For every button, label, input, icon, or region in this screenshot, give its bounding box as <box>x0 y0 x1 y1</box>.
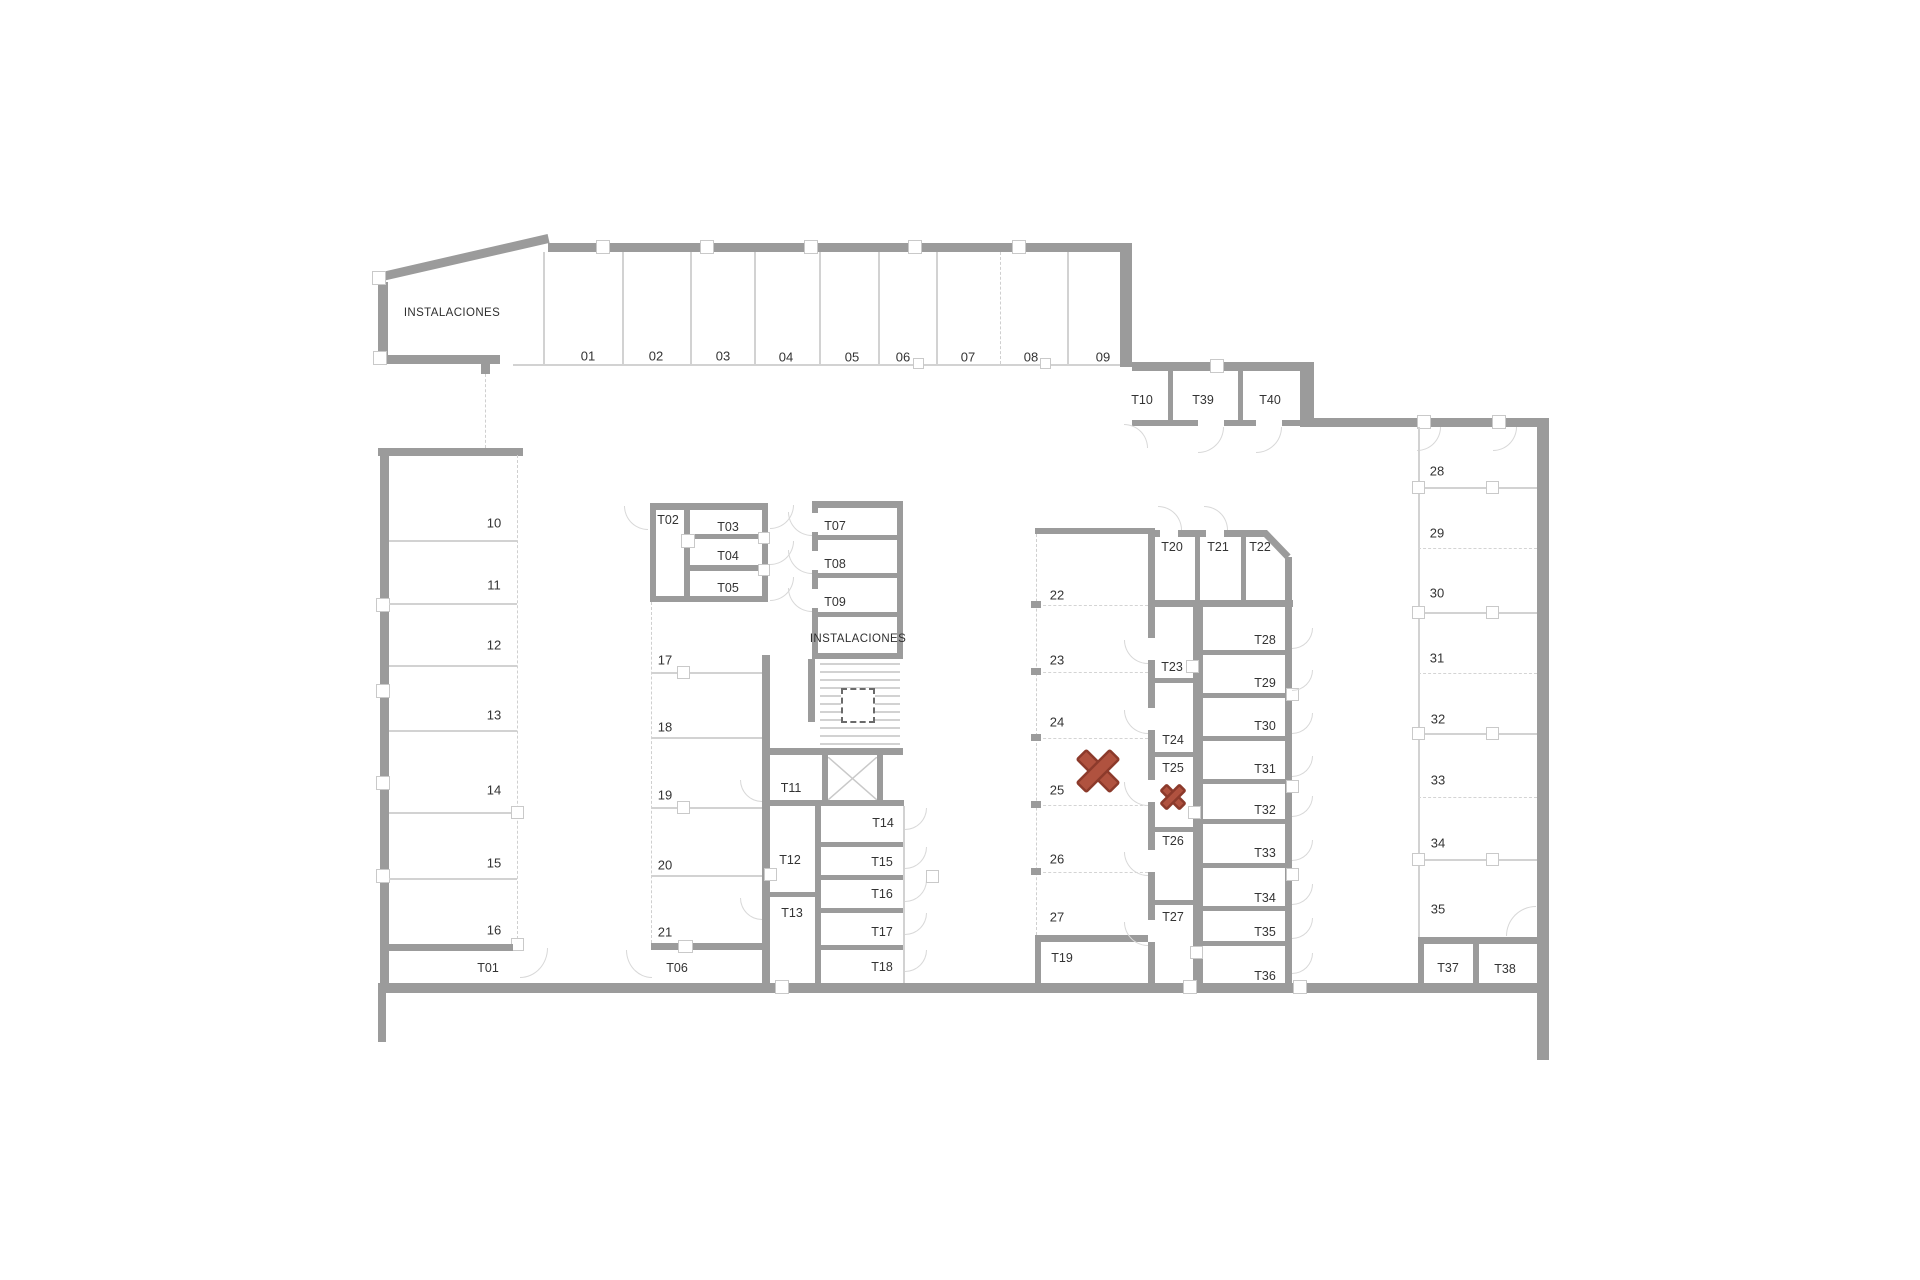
parking-spot-label: 12 <box>487 638 501 653</box>
parking-line-dashed <box>1038 672 1148 673</box>
storage-room-label: T05 <box>717 581 739 595</box>
parking-line <box>389 665 517 667</box>
door-gap <box>1148 780 1155 802</box>
t01-top-wall <box>389 944 513 951</box>
storage-room-label: T35 <box>1254 925 1276 939</box>
storage-room-label: T29 <box>1254 676 1276 690</box>
door-arc <box>1292 628 1313 649</box>
storage-room-label: T03 <box>717 520 739 534</box>
storage-room-label: T14 <box>872 816 894 830</box>
parking-divider <box>622 252 624 364</box>
storage-room-label: T11 <box>781 781 802 795</box>
door-arc <box>788 550 812 574</box>
left-block-top-wall <box>378 448 523 456</box>
storage-room-label: T25 <box>1162 761 1184 775</box>
parking-spot-label: 09 <box>1096 350 1110 365</box>
door-arc <box>1124 782 1148 806</box>
parking-divider <box>819 252 821 364</box>
parking-spot-label: 27 <box>1050 910 1064 925</box>
pillar <box>376 869 390 883</box>
t28-t29-divider <box>1203 650 1288 655</box>
pillar <box>775 980 789 994</box>
door-gap <box>812 551 818 570</box>
door-arc <box>1292 953 1313 974</box>
t31-t32-divider <box>1203 779 1288 784</box>
elevator-shaft-cross <box>828 757 877 800</box>
pillar <box>1183 980 1197 994</box>
t02-interior-wall <box>684 510 690 600</box>
parking-line-dashed <box>1418 548 1537 549</box>
stair-void <box>841 688 875 723</box>
t21-t22-divider <box>1241 537 1246 601</box>
parking-spot-label: 20 <box>658 858 672 873</box>
parking-spot-label: 06 <box>896 350 910 365</box>
storage-room-label: T17 <box>871 925 893 939</box>
storage-room-label: T24 <box>1162 733 1184 747</box>
parking-line-dashed <box>1418 797 1537 798</box>
pillar <box>1012 240 1026 254</box>
parking-spot-label: 02 <box>649 349 663 364</box>
parking-line <box>651 737 768 739</box>
pillar <box>1040 358 1051 369</box>
t26-t27-divider <box>1153 900 1193 905</box>
pillar <box>1412 727 1425 740</box>
parking-spot-label: 19 <box>658 788 672 803</box>
door-arc <box>1506 906 1536 936</box>
door-arc <box>1292 670 1313 691</box>
door-arc <box>1292 840 1313 861</box>
t04-t05-divider <box>690 565 768 571</box>
t28-col-right-wall <box>1285 557 1292 985</box>
door-gap <box>1148 920 1155 942</box>
t19-left-wall <box>1035 935 1041 983</box>
parking-line-dashed <box>1038 805 1148 806</box>
storage-room-label: T20 <box>1161 540 1183 554</box>
door-arc <box>1124 710 1148 734</box>
parking-line <box>1418 487 1537 489</box>
parking-line <box>651 875 768 877</box>
door-arc <box>740 898 762 920</box>
pillar <box>1190 946 1203 959</box>
parking-spot-label: 34 <box>1431 836 1445 851</box>
door-gap <box>1148 850 1155 872</box>
wall-tick <box>1031 601 1041 608</box>
storage-room-label: T04 <box>717 549 739 563</box>
pillar <box>1486 606 1499 619</box>
parking-line <box>389 878 517 880</box>
storage-room-label: T18 <box>871 960 893 974</box>
pillar <box>376 776 390 790</box>
pillar <box>1286 780 1299 793</box>
parking-line <box>389 730 517 732</box>
storage-room-label: T15 <box>871 855 893 869</box>
parking-spot-label: 01 <box>581 349 595 364</box>
wall-tick <box>1031 668 1041 675</box>
pillar <box>1412 606 1425 619</box>
t09-inst-divider <box>818 612 903 617</box>
parking-spot-label: 35 <box>1431 902 1445 917</box>
t30-t31-divider <box>1203 736 1288 741</box>
center-aisle-dashed-line <box>651 602 652 943</box>
storage-room-label: T34 <box>1254 891 1276 905</box>
pillar <box>376 684 390 698</box>
stair-bottom-wall <box>762 748 903 755</box>
parking-divider <box>1067 252 1069 364</box>
pillar <box>677 666 690 679</box>
door-arc <box>1124 640 1148 664</box>
pillar <box>1486 481 1499 494</box>
t14-col-left-wall <box>815 806 821 983</box>
top-left-diagonal-wall <box>377 234 550 282</box>
parking-line-dashed <box>1038 605 1148 606</box>
pillar <box>1293 980 1307 994</box>
parking-divider <box>754 252 756 364</box>
right-outer-wall <box>1537 418 1549 1060</box>
storage-room-label: T27 <box>1162 910 1184 924</box>
t12-t13-divider <box>768 892 815 897</box>
elevator-right-wall <box>877 755 883 801</box>
door-arc <box>1204 506 1228 530</box>
t20-t21-divider <box>1195 537 1200 601</box>
parking-spot-label: 21 <box>658 925 672 940</box>
t37-block-top-wall <box>1418 937 1538 944</box>
t07-block-bottom-wall <box>812 653 903 659</box>
left-outer-wall <box>380 456 389 983</box>
storage-room-label: T10 <box>1131 393 1153 407</box>
door-gap <box>1148 708 1155 730</box>
pillar <box>1486 727 1499 740</box>
pillar <box>764 868 777 881</box>
door-arc <box>905 847 927 869</box>
parking-divider <box>936 252 938 364</box>
t02-block-bottom-wall <box>650 596 768 602</box>
mid-block-top-wall <box>1035 528 1150 534</box>
parking-line <box>389 540 517 542</box>
t06-top-wall <box>651 943 768 950</box>
pillar <box>804 240 818 254</box>
stair-tread <box>820 735 900 737</box>
parking-divider-dashed <box>1000 252 1001 364</box>
pillar <box>373 351 387 365</box>
t24-t25-divider <box>1153 752 1193 757</box>
door-arc <box>1292 756 1313 777</box>
door-arc <box>1124 424 1148 448</box>
parking-spot-label: 18 <box>658 720 672 735</box>
pillar <box>1412 481 1425 494</box>
t33-t34-divider <box>1203 863 1288 868</box>
entrance-stub-wall <box>481 362 490 374</box>
instalaciones-upper-label: INSTALACIONES <box>404 307 500 319</box>
t17-t18-divider <box>821 945 903 950</box>
storage-room-label: T38 <box>1494 962 1516 976</box>
door-arc <box>1417 427 1441 451</box>
door-arc <box>905 880 927 902</box>
pillar <box>926 870 939 883</box>
marker-x-small <box>1158 782 1188 812</box>
parking-line <box>651 672 768 674</box>
door-arc <box>1292 918 1313 939</box>
parking-spot-label: 05 <box>845 350 859 365</box>
door-gap <box>812 513 818 532</box>
door-arc <box>1198 427 1224 453</box>
t20-strip-bottom-wall <box>1150 600 1293 607</box>
bottom-left-descender-wall <box>378 993 386 1042</box>
door-arc <box>905 950 927 972</box>
door-arc <box>1158 506 1182 530</box>
stair-tread <box>820 727 900 729</box>
storage-room-label: T19 <box>1051 951 1073 965</box>
storage-room-label: T02 <box>657 513 679 527</box>
parking-spot-label: 10 <box>487 516 501 531</box>
parking-line <box>1418 612 1537 614</box>
storage-room-label: T07 <box>824 519 846 533</box>
parking-line <box>651 807 768 809</box>
pillar <box>678 940 693 953</box>
pillar <box>908 240 922 254</box>
stair-tread <box>820 663 900 665</box>
top-right-vertical-wall <box>1120 243 1132 367</box>
t02-block-top-wall <box>650 503 768 510</box>
storage-room-label: T06 <box>666 961 688 975</box>
corridor-wall <box>762 655 770 983</box>
t34-t35-divider <box>1203 906 1288 911</box>
parking-spot-label: 32 <box>1431 712 1445 727</box>
parking-spot-label: 23 <box>1050 653 1064 668</box>
door-arc <box>1292 713 1313 734</box>
door-arc <box>1493 427 1517 451</box>
door-gap <box>1256 419 1282 427</box>
parking-spot-label: 29 <box>1430 526 1444 541</box>
parking-divider <box>690 252 692 364</box>
storage-room-label: T16 <box>871 887 893 901</box>
storage-room-label: T22 <box>1249 540 1271 554</box>
t02-block-right-wall <box>762 503 768 602</box>
pillar <box>511 806 524 819</box>
door-arc <box>788 512 812 536</box>
parking-line <box>1418 859 1537 861</box>
storage-room-label: T01 <box>477 961 499 975</box>
storage-room-label: T23 <box>1161 660 1183 674</box>
pillar <box>681 534 695 548</box>
pillar <box>1186 660 1199 673</box>
t07-block-top-wall <box>812 501 903 508</box>
t08-t09-divider <box>818 573 903 578</box>
parking-line <box>389 812 517 814</box>
storage-room-label: T21 <box>1207 540 1229 554</box>
storage-room-label: T32 <box>1254 803 1276 817</box>
storage-room-label: T12 <box>779 853 801 867</box>
t35-t36-divider <box>1203 941 1288 946</box>
door-arc <box>626 950 652 978</box>
parking-line <box>1418 733 1537 735</box>
storage-room-label: T40 <box>1259 393 1281 407</box>
door-gap <box>1198 419 1224 427</box>
door-arc <box>520 948 548 978</box>
parking-spot-label: 30 <box>1430 586 1444 601</box>
t15-t16-divider <box>821 875 903 880</box>
t14-t15-divider <box>821 842 903 847</box>
door-arc <box>740 780 762 802</box>
left-aisle-dashed-line <box>517 455 518 944</box>
marker-x-large <box>1072 747 1124 795</box>
parking-line-dashed <box>1038 738 1148 739</box>
storage-room-label: T33 <box>1254 846 1276 860</box>
door-arc <box>1292 796 1313 817</box>
storage-room-label: T31 <box>1254 762 1276 776</box>
pillar <box>1210 359 1224 373</box>
door-gap <box>1148 638 1155 660</box>
parking-spot-label: 25 <box>1050 783 1064 798</box>
t32-t33-divider <box>1203 819 1288 824</box>
storage-room-label: T36 <box>1254 969 1276 983</box>
t10-block-right-wall <box>1300 362 1314 427</box>
wall-tick <box>1031 801 1041 808</box>
parking-spot-label: 17 <box>658 653 672 668</box>
storage-room-label: T08 <box>824 557 846 571</box>
parking-spot-label: 14 <box>487 783 501 798</box>
t10-t39-divider <box>1168 371 1173 423</box>
stair-tread <box>820 671 900 673</box>
storage-room-label: T09 <box>824 595 846 609</box>
pillar <box>596 240 610 254</box>
pillar <box>1412 853 1425 866</box>
door-gap <box>812 589 818 608</box>
door-arc <box>1124 922 1148 946</box>
door-arc <box>905 808 927 830</box>
parking-spot-label: 16 <box>487 923 501 938</box>
t25-t26-divider <box>1153 827 1193 832</box>
stair-tread <box>820 743 900 745</box>
pillar <box>372 271 386 285</box>
wall-tick <box>1031 734 1041 741</box>
parking-spot-label: 31 <box>1430 651 1444 666</box>
parking-spot-label: 03 <box>716 349 730 364</box>
entrance-dashed-line <box>485 374 486 448</box>
door-arc <box>788 588 812 612</box>
parking-spot-label: 07 <box>961 350 975 365</box>
stair-tread <box>820 679 900 681</box>
pillar <box>1188 806 1201 819</box>
t02-block-left-wall <box>650 510 656 602</box>
parking-spot-label: 15 <box>487 856 501 871</box>
storage-room-label: T28 <box>1254 633 1276 647</box>
top-wall <box>548 243 1131 252</box>
parking-line-dashed <box>1418 673 1537 674</box>
t37-t38-divider <box>1473 944 1479 984</box>
parking-spot-label: 04 <box>779 350 793 365</box>
parking-spot-label: 33 <box>1431 773 1445 788</box>
pillar <box>677 801 690 814</box>
storage-room-label: T13 <box>781 906 803 920</box>
parking-divider <box>543 252 545 364</box>
pillar <box>758 564 770 576</box>
pillar <box>758 532 770 544</box>
parking-divider <box>878 252 880 364</box>
stair-left-wall <box>808 659 815 722</box>
pillar <box>1286 868 1299 881</box>
parking-line <box>389 603 517 605</box>
t29-t30-divider <box>1203 693 1288 698</box>
t23-t24-divider <box>1153 678 1193 683</box>
door-arc <box>1256 427 1282 453</box>
storage-room-label: T26 <box>1162 834 1184 848</box>
door-arc <box>624 506 648 530</box>
t39-t40-divider <box>1238 371 1243 423</box>
parking-line-dashed <box>1038 872 1148 873</box>
pillar <box>913 358 924 369</box>
parking-spot-label: 26 <box>1050 852 1064 867</box>
parking-spot-label: 22 <box>1050 588 1064 603</box>
door-arc <box>1292 884 1313 905</box>
parking-spot-label: 08 <box>1024 350 1038 365</box>
parking-spot-label: 11 <box>487 578 501 593</box>
parking-spot-label: 24 <box>1050 715 1064 730</box>
parking-spot-label: 28 <box>1430 464 1444 479</box>
instalaciones-middle-label: INSTALACIONES <box>810 633 906 645</box>
storage-room-label: T39 <box>1192 393 1214 407</box>
t37-block-left-wall <box>1418 944 1424 984</box>
t07-t08-divider <box>818 535 903 540</box>
pillar <box>376 598 390 612</box>
parking-spot-label: 13 <box>487 708 501 723</box>
wall-tick <box>1031 868 1041 875</box>
storage-room-label: T30 <box>1254 719 1276 733</box>
pillar <box>1486 853 1499 866</box>
door-arc <box>905 913 927 935</box>
t16-t17-divider <box>821 908 903 913</box>
pillar <box>700 240 714 254</box>
t03-t04-divider <box>690 534 762 539</box>
bottom-wall <box>378 983 1549 993</box>
storage-room-label: T37 <box>1437 961 1459 975</box>
floor-plan: INSTALACIONES INSTALACIONES 01 02 03 04 … <box>0 0 1920 1280</box>
